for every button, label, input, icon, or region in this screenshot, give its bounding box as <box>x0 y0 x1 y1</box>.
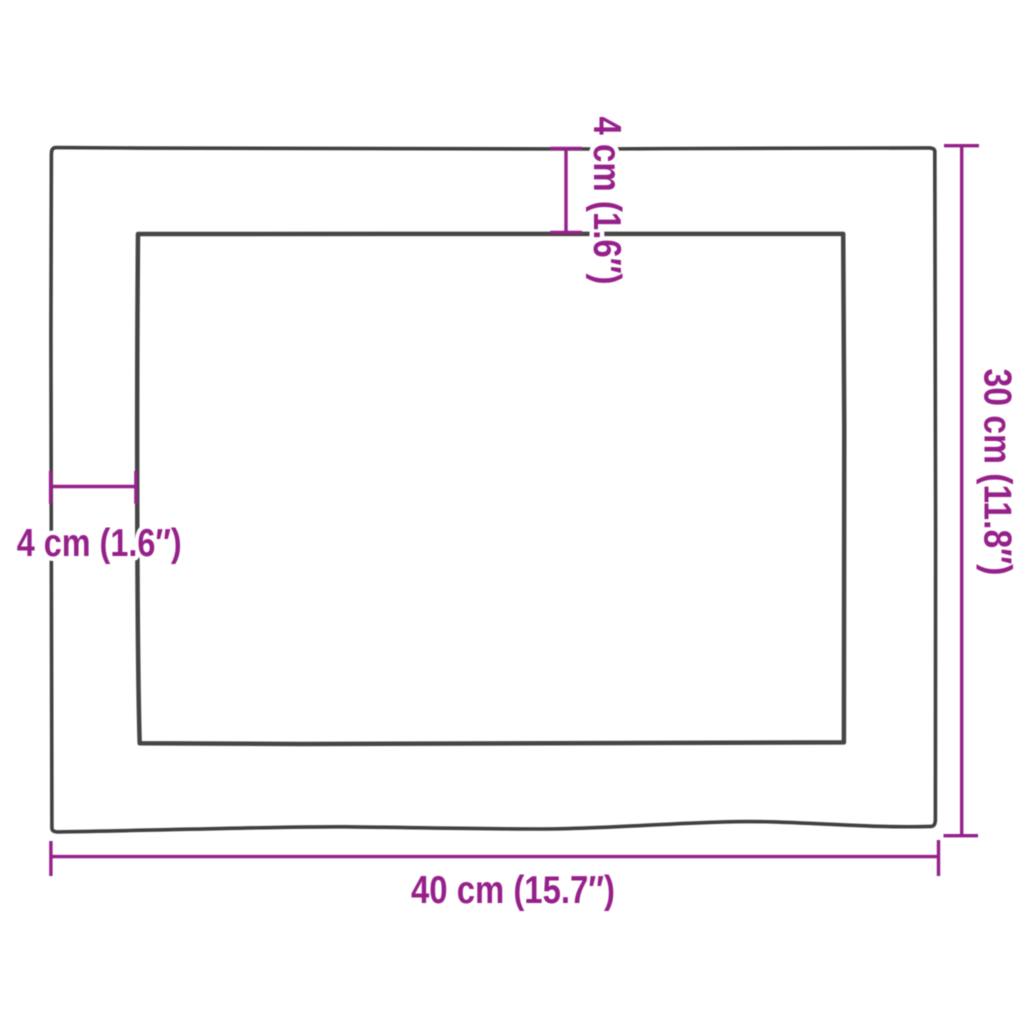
svg-text:4 cm (1.6″): 4 cm (1.6″) <box>585 117 628 285</box>
svg-text:40 cm (15.7″): 40 cm (15.7″) <box>411 869 615 912</box>
svg-text:30 cm (11.8″): 30 cm (11.8″) <box>976 369 1019 576</box>
svg-text:4 cm (1.6″): 4 cm (1.6″) <box>17 522 182 565</box>
